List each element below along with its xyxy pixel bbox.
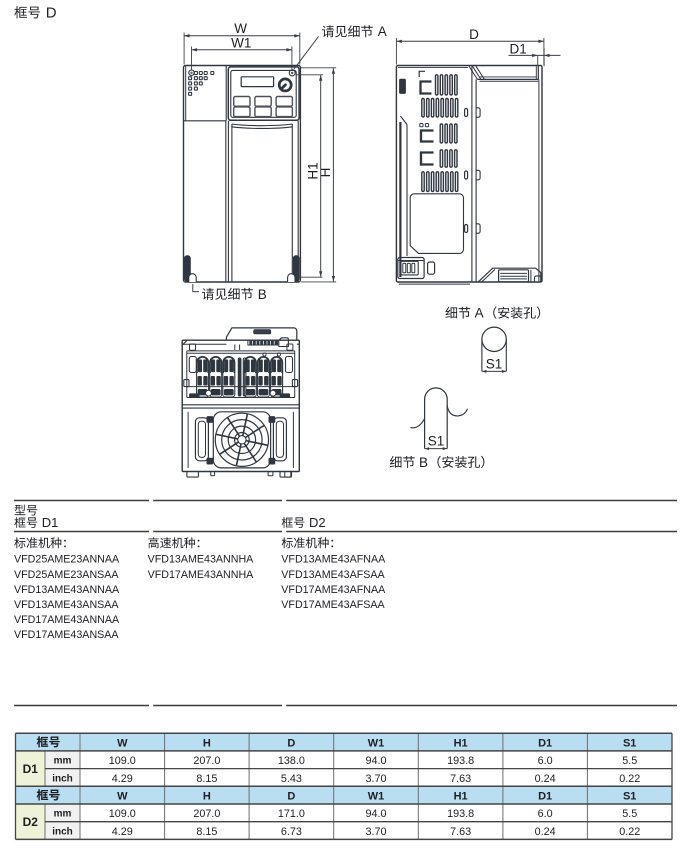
svg-text:207.0: 207.0 bbox=[193, 808, 220, 820]
svg-text:4.29: 4.29 bbox=[112, 826, 133, 838]
svg-text:7.63: 7.63 bbox=[450, 826, 471, 838]
svg-text:D: D bbox=[469, 27, 479, 42]
svg-text:VFD17AME43AFNAA: VFD17AME43AFNAA bbox=[281, 584, 386, 596]
svg-text:94.0: 94.0 bbox=[365, 755, 386, 767]
svg-text:D: D bbox=[287, 737, 295, 749]
svg-text:H: H bbox=[203, 790, 211, 802]
svg-text:5.5: 5.5 bbox=[622, 808, 637, 820]
svg-text:S1: S1 bbox=[623, 790, 636, 802]
svg-text:H1: H1 bbox=[454, 790, 468, 802]
svg-text:A: A bbox=[475, 306, 484, 321]
svg-text:D1: D1 bbox=[510, 41, 527, 56]
svg-text:W1: W1 bbox=[231, 35, 251, 50]
svg-text:D1: D1 bbox=[23, 762, 39, 776]
svg-text:109.0: 109.0 bbox=[109, 755, 136, 767]
svg-text:VFD17AME43ANSAA: VFD17AME43ANSAA bbox=[14, 629, 119, 641]
svg-text:D1: D1 bbox=[538, 737, 552, 749]
svg-text:D: D bbox=[287, 790, 295, 802]
svg-text:109.0: 109.0 bbox=[109, 808, 136, 820]
svg-text:VFD17AME43ANNAA: VFD17AME43ANNAA bbox=[14, 614, 120, 626]
svg-text:207.0: 207.0 bbox=[193, 755, 220, 767]
svg-text:B: B bbox=[419, 455, 428, 470]
svg-text:mm: mm bbox=[54, 756, 72, 767]
svg-text:5.5: 5.5 bbox=[622, 755, 637, 767]
svg-text:5.43: 5.43 bbox=[281, 773, 302, 785]
svg-text:H1: H1 bbox=[454, 737, 468, 749]
svg-text:VFD25AME23ANSAA: VFD25AME23ANSAA bbox=[14, 569, 119, 581]
svg-text:S1: S1 bbox=[486, 356, 503, 371]
svg-text:6.0: 6.0 bbox=[538, 808, 553, 820]
svg-text:VFD13AME43ANNHA: VFD13AME43ANNHA bbox=[148, 554, 255, 566]
svg-text:D2: D2 bbox=[23, 815, 39, 829]
svg-text:W1: W1 bbox=[368, 790, 385, 802]
svg-text:8.15: 8.15 bbox=[196, 826, 217, 838]
svg-text:VFD25AME23ANNAA: VFD25AME23ANNAA bbox=[14, 554, 120, 566]
svg-text:W1: W1 bbox=[368, 737, 385, 749]
svg-text:0.22: 0.22 bbox=[619, 826, 640, 838]
svg-text:A: A bbox=[378, 24, 387, 39]
svg-text:H: H bbox=[203, 737, 211, 749]
svg-text:VFD13AME43AFSAA: VFD13AME43AFSAA bbox=[281, 569, 385, 581]
svg-text:D1: D1 bbox=[42, 515, 59, 530]
svg-text:VFD17AME43AFSAA: VFD17AME43AFSAA bbox=[281, 599, 385, 611]
svg-text:VFD13AME43ANSAA: VFD13AME43ANSAA bbox=[14, 599, 119, 611]
svg-text:inch: inch bbox=[52, 773, 73, 784]
svg-text:3.70: 3.70 bbox=[365, 773, 386, 785]
svg-text:4.29: 4.29 bbox=[112, 773, 133, 785]
svg-text:H1: H1 bbox=[305, 162, 320, 179]
svg-text:0.24: 0.24 bbox=[535, 826, 556, 838]
svg-text:7.63: 7.63 bbox=[450, 773, 471, 785]
svg-text:D2: D2 bbox=[309, 515, 326, 530]
svg-text:B: B bbox=[258, 287, 267, 302]
svg-text:6.73: 6.73 bbox=[281, 826, 302, 838]
svg-text:S1: S1 bbox=[428, 434, 445, 449]
svg-text:S1: S1 bbox=[623, 737, 636, 749]
svg-text:6.0: 6.0 bbox=[538, 755, 553, 767]
svg-text:3.70: 3.70 bbox=[365, 826, 386, 838]
svg-text:W: W bbox=[234, 21, 247, 36]
svg-text:W: W bbox=[117, 790, 128, 802]
svg-text:VFD17AME43ANNHA: VFD17AME43ANNHA bbox=[148, 569, 255, 581]
svg-text:8.15: 8.15 bbox=[196, 773, 217, 785]
svg-text:193.8: 193.8 bbox=[447, 808, 474, 820]
svg-text:VFD13AME43ANNAA: VFD13AME43ANNAA bbox=[14, 584, 120, 596]
svg-text:94.0: 94.0 bbox=[365, 808, 386, 820]
svg-text:171.0: 171.0 bbox=[278, 808, 305, 820]
svg-text:inch: inch bbox=[52, 826, 73, 837]
svg-text:VFD13AME43AFNAA: VFD13AME43AFNAA bbox=[281, 554, 386, 566]
svg-text:138.0: 138.0 bbox=[278, 755, 305, 767]
svg-text:mm: mm bbox=[54, 809, 72, 820]
svg-text:193.8: 193.8 bbox=[447, 755, 474, 767]
svg-text:0.24: 0.24 bbox=[535, 773, 556, 785]
svg-text:D1: D1 bbox=[538, 790, 552, 802]
svg-text:0.22: 0.22 bbox=[619, 773, 640, 785]
svg-text:D: D bbox=[46, 5, 57, 22]
svg-text:W: W bbox=[117, 737, 128, 749]
